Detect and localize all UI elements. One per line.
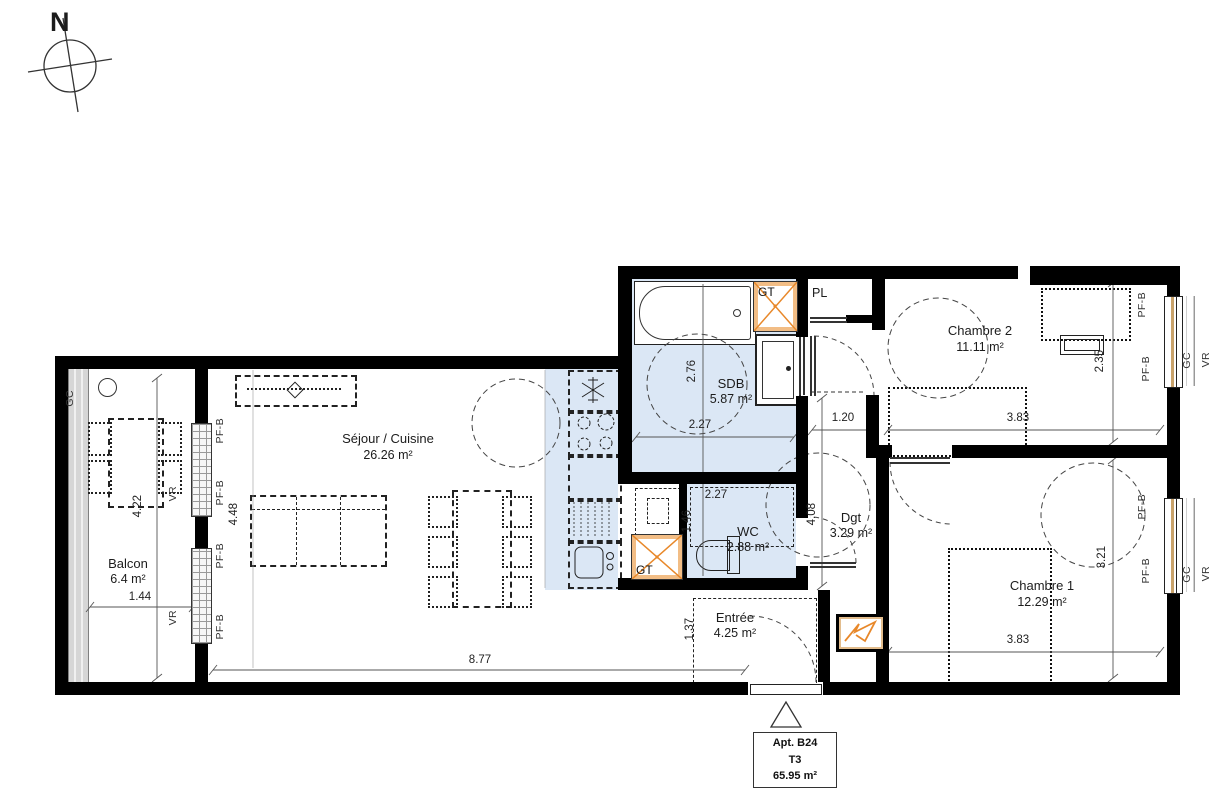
pfb-label: PF-B xyxy=(214,418,227,444)
pl-sliding-door xyxy=(810,317,847,319)
pl-sliding-door xyxy=(810,321,847,323)
cooktop xyxy=(568,410,622,458)
window-sejour-2 xyxy=(191,548,212,644)
room-label-entree: Entrée xyxy=(716,610,754,626)
gt-label: GT xyxy=(636,563,653,577)
room-area-balcon: 6.4 m² xyxy=(110,572,145,587)
pfb-label: PF-B xyxy=(214,480,227,506)
wall-segment xyxy=(618,279,632,472)
window-sejour-1 xyxy=(191,423,212,517)
room-label-wc: WC xyxy=(737,524,759,540)
wall-segment xyxy=(872,279,885,330)
balcony-chair xyxy=(158,422,182,456)
room-area-wc: 2.88 m² xyxy=(727,540,769,555)
dim-entree-height: 1.37 xyxy=(684,618,698,640)
entry-triangle-icon xyxy=(771,702,801,727)
dishwasher xyxy=(568,498,622,544)
balcony-chair xyxy=(88,460,112,494)
wall-segment xyxy=(55,356,68,695)
room-area-sejour: 26.26 m² xyxy=(363,448,412,463)
dim-wc-width: 2.27 xyxy=(705,489,727,503)
room-label-sdb: SDB xyxy=(718,376,745,392)
dining-chair xyxy=(502,536,532,568)
bathtub xyxy=(634,281,756,345)
washing-machine xyxy=(635,488,681,536)
wall-segment xyxy=(55,356,630,369)
pfb-label: PF-B xyxy=(1140,558,1153,584)
kitchen-sink xyxy=(568,540,622,589)
gc-label: GC xyxy=(1181,566,1194,583)
room-area-entree: 4.25 m² xyxy=(714,626,756,641)
gt-label: GT xyxy=(758,285,775,299)
vr-label: VR xyxy=(1200,352,1213,367)
dim-balcon-width: 1.44 xyxy=(129,591,151,605)
dim-sdb-width: 2.27 xyxy=(689,419,711,433)
desk-chambre2 xyxy=(1041,288,1131,341)
wall-segment xyxy=(796,396,808,472)
wall-segment xyxy=(1030,266,1180,285)
dining-chair xyxy=(502,576,532,608)
wall-segment xyxy=(195,515,208,548)
bed-chambre1 xyxy=(948,548,1052,684)
wc-door-leaf xyxy=(810,566,856,568)
north-label: N xyxy=(50,6,70,38)
pfb-label: PF-B xyxy=(1136,292,1149,318)
wc-door-leaf xyxy=(810,562,856,564)
dining-chair xyxy=(428,576,458,608)
dim-dgt-width: 1.20 xyxy=(832,412,854,426)
dgt-door-leaf xyxy=(814,336,816,396)
dining-chair xyxy=(428,536,458,568)
room-area-chambre2: 11.11 m² xyxy=(956,340,1003,355)
dim-chambre2-height: 2.35 xyxy=(1094,350,1108,372)
dim-dgt-height: 4.08 xyxy=(806,503,820,525)
wall-segment xyxy=(846,315,872,323)
entry-door xyxy=(750,684,822,695)
dim-sdb-height: 2.76 xyxy=(686,360,700,382)
north-arrow-icon xyxy=(28,18,112,112)
title-block: Apt. B24 T3 65.95 m² xyxy=(753,732,837,788)
dining-chair xyxy=(502,496,532,528)
pfb-label: PF-B xyxy=(214,614,227,640)
dim-chambre1-width: 3.83 xyxy=(1007,634,1029,648)
dgt-door-leaf xyxy=(810,336,812,396)
gc-duct-strip xyxy=(68,369,89,682)
pfb-label: PF-B xyxy=(1136,494,1149,520)
wall-segment xyxy=(823,682,1180,695)
sofa xyxy=(250,495,387,567)
vr-label: VR xyxy=(1200,566,1213,581)
dim-sejour-width: 8.77 xyxy=(469,654,491,668)
washbasin xyxy=(755,334,801,406)
pfb-label: PF-B xyxy=(1140,356,1153,382)
electrical-panel xyxy=(836,614,886,652)
dim-chambre2-width: 3.83 xyxy=(1007,412,1029,426)
wall-segment xyxy=(55,682,748,695)
room-label-chambre1: Chambre 1 xyxy=(1010,578,1074,594)
dim-sejour-sofa: 4.48 xyxy=(228,503,242,525)
dim-chambre1-height: 3.21 xyxy=(1096,546,1110,568)
pfb-label: PF-B xyxy=(214,543,227,569)
chambre1-door-leaf xyxy=(890,462,950,464)
wall-segment xyxy=(818,590,830,682)
wall-segment xyxy=(195,369,208,423)
sideboard xyxy=(235,375,357,407)
dim-wc-height: 1.46 xyxy=(681,510,695,532)
kitchen-counter xyxy=(568,454,622,502)
room-area-sdb: 5.87 m² xyxy=(710,392,752,407)
wall-segment xyxy=(195,642,208,682)
apartment-area: 65.95 m² xyxy=(773,768,817,785)
vr-label: VR xyxy=(167,610,180,625)
gc-label: GC xyxy=(1181,352,1194,369)
room-label-dgt: Dgt xyxy=(841,510,861,526)
dim-balcon-height: 4.22 xyxy=(132,495,146,517)
wall-segment xyxy=(1167,592,1180,695)
gc-label: GC xyxy=(64,390,77,407)
room-label-pl: PL xyxy=(812,286,827,301)
vr-label: VR xyxy=(167,486,180,501)
gt-duct-box: GT xyxy=(753,281,798,332)
room-label-balcon: Balcon xyxy=(108,556,148,572)
room-area-chambre1: 12.29 m² xyxy=(1017,595,1066,610)
sdb-door-leaf xyxy=(803,337,805,395)
balcony-chair xyxy=(88,422,112,456)
room-label-sejour: Séjour / Cuisine xyxy=(342,431,434,447)
fridge xyxy=(568,370,622,414)
wall-segment xyxy=(1167,266,1180,296)
wall-notch xyxy=(1018,266,1030,279)
apartment-id: Apt. B24 xyxy=(773,735,818,752)
wall-segment xyxy=(618,472,808,484)
dining-chair xyxy=(428,496,458,528)
lightning-icon xyxy=(839,617,883,649)
chambre1-door-leaf xyxy=(890,457,950,459)
apartment-type: T3 xyxy=(789,752,802,769)
room-label-chambre2: Chambre 2 xyxy=(948,323,1012,339)
floor-plan: GT GT xyxy=(0,0,1222,800)
ceiling-light xyxy=(98,378,117,397)
room-area-dgt: 3.29 m² xyxy=(830,526,872,541)
wall-segment xyxy=(952,445,1180,458)
window-chambre2 xyxy=(1164,296,1183,388)
sdb-door-leaf xyxy=(799,337,801,395)
wall-segment xyxy=(1167,386,1180,498)
gt-duct-box: GT xyxy=(631,534,683,580)
